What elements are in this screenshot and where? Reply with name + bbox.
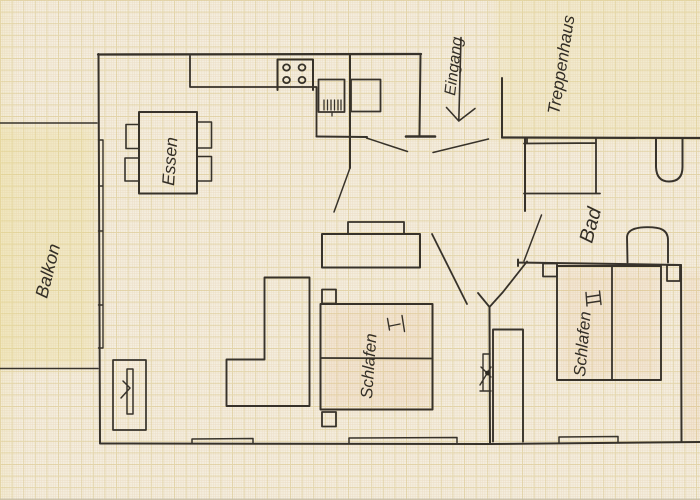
svg-text:Essen: Essen xyxy=(158,136,181,186)
